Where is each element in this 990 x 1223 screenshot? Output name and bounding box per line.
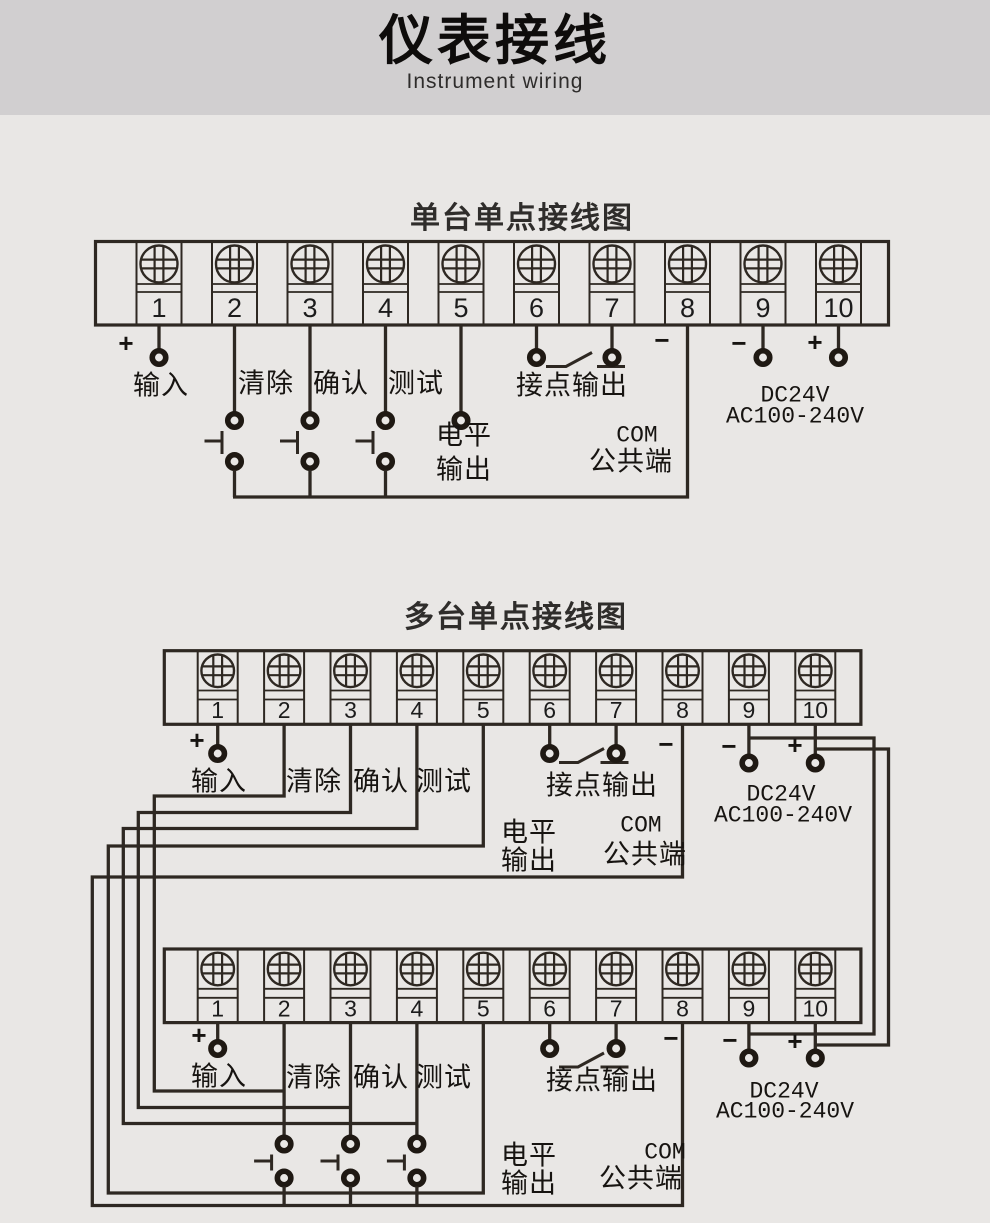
screw-terminal-icon (216, 246, 253, 283)
terminal-number: 5 (453, 293, 468, 323)
ring-terminal (530, 351, 544, 365)
screw-terminal-icon (594, 246, 631, 283)
terminal-clamp-line (590, 284, 635, 292)
terminal-clamp-line (137, 284, 182, 292)
terminal-number: 2 (227, 293, 242, 323)
sign-minus-com-3: − (663, 1025, 678, 1051)
label-input-3: 输入 (191, 1064, 247, 1091)
terminal-number: 3 (302, 293, 317, 323)
label-contact-output-2: 接点输出 (546, 773, 658, 800)
screw-terminal-icon (600, 953, 633, 986)
terminal-number: 9 (743, 697, 756, 723)
terminal-number: 1 (151, 293, 166, 323)
sign-plus-power-2: + (787, 732, 802, 758)
terminal-number: 4 (411, 996, 424, 1022)
label-confirm-2: 确认 (353, 769, 409, 796)
ring-terminal (410, 1171, 424, 1185)
sign-minus-power-1: − (731, 330, 746, 356)
label-com-1: COM (616, 425, 657, 448)
ring-terminal (410, 1137, 424, 1151)
ring-terminal (211, 747, 225, 761)
label-clear-3: 清除 (286, 1065, 342, 1092)
ring-terminal (277, 1171, 291, 1185)
terminal-number: 7 (604, 293, 619, 323)
screw-terminal-icon (201, 655, 234, 688)
screw-terminal-icon (268, 655, 301, 688)
terminal-number: 4 (378, 293, 393, 323)
ring-terminal (543, 1042, 557, 1056)
terminal-clamp-line (439, 284, 484, 292)
label-clear-1: 清除 (238, 371, 294, 398)
sign-minus-com-1: − (654, 327, 669, 353)
terminal-number: 6 (543, 697, 556, 723)
screw-terminal-icon (666, 953, 699, 986)
terminal-clamp-line (741, 284, 786, 292)
label-contact-output-3: 接点输出 (546, 1068, 658, 1095)
terminal-number: 4 (411, 697, 424, 723)
terminal-number: 9 (755, 293, 770, 323)
terminal-number: 6 (529, 293, 544, 323)
screw-terminal-icon (820, 246, 857, 283)
label-ac100-240v-3: AC100-240V (716, 1101, 854, 1124)
ring-terminal (211, 1042, 225, 1056)
ring-terminal (303, 414, 317, 428)
sign-plus-power-1: + (807, 329, 822, 355)
ring-terminal (228, 414, 242, 428)
ring-terminal (379, 414, 393, 428)
ring-terminal (832, 351, 846, 365)
wiring-diagram-canvas: 123456789101234567891012345678910 (0, 0, 990, 1223)
ring-terminal (742, 756, 756, 770)
ring-terminal (605, 351, 619, 365)
ring-terminal (344, 1171, 358, 1185)
label-common-3: 公共端 (599, 1166, 683, 1193)
label-level-1a: 电平 (436, 423, 492, 450)
terminal-number: 5 (477, 697, 490, 723)
terminal-block-2 (164, 651, 861, 725)
ring-terminal (809, 1051, 823, 1065)
label-input-2: 输入 (191, 769, 247, 796)
terminal-number: 2 (278, 996, 291, 1022)
screw-terminal-icon (666, 655, 699, 688)
screw-terminal-icon (141, 246, 178, 283)
screw-terminal-icon (201, 953, 234, 986)
terminal-number: 6 (543, 996, 556, 1022)
screw-terminal-icon (334, 655, 367, 688)
terminal-number: 8 (676, 996, 689, 1022)
label-level-3b: 输出 (501, 1171, 557, 1198)
screw-terminal-icon (799, 953, 832, 986)
label-com-3: COM (644, 1142, 685, 1165)
terminal-number: 3 (344, 996, 357, 1022)
terminal-number: 9 (743, 996, 756, 1022)
ring-terminal (277, 1137, 291, 1151)
terminal-number: 7 (610, 697, 623, 723)
ring-terminal (303, 455, 317, 469)
terminal-number: 10 (823, 293, 853, 323)
terminal-clamp-line (514, 284, 559, 292)
label-level-1b: 输出 (436, 457, 492, 484)
terminal-number: 8 (676, 697, 689, 723)
sign-plus-input-3: + (191, 1022, 206, 1048)
terminal-clamp-line (816, 284, 861, 292)
ring-terminal (344, 1137, 358, 1151)
ring-terminal (742, 1051, 756, 1065)
terminal-clamp-line (212, 284, 257, 292)
ring-terminal (609, 1042, 623, 1056)
wiring-page: 仪表接线 Instrument wiring 单台单点接线图 多台单点接线图 1… (0, 0, 990, 1223)
ring-terminal (609, 747, 623, 761)
screw-terminal-icon (533, 953, 566, 986)
sign-plus-power-3: + (787, 1028, 802, 1054)
terminal-clamp-line (363, 284, 408, 292)
screw-terminal-icon (799, 655, 832, 688)
screw-terminal-icon (467, 655, 500, 688)
screw-terminal-icon (533, 655, 566, 688)
sign-plus-input-2: + (189, 727, 204, 753)
ring-terminal (228, 455, 242, 469)
screw-terminal-icon (733, 655, 766, 688)
screw-terminal-icon (401, 953, 434, 986)
ring-terminal (152, 351, 166, 365)
ring-terminal (379, 455, 393, 469)
screw-terminal-icon (443, 246, 480, 283)
screw-terminal-icon (518, 246, 555, 283)
label-level-2b: 输出 (501, 848, 557, 875)
label-input-1: 输入 (133, 373, 189, 400)
label-ac100-240v-1: AC100-240V (726, 406, 864, 429)
label-test-1: 测试 (388, 371, 444, 398)
terminal-clamp-line (665, 284, 710, 292)
screw-terminal-icon (401, 655, 434, 688)
label-confirm-1: 确认 (313, 371, 369, 398)
label-confirm-3: 确认 (353, 1065, 409, 1092)
ring-terminal (809, 756, 823, 770)
screw-terminal-icon (733, 953, 766, 986)
sign-minus-power-2: − (721, 733, 736, 759)
label-test-2: 测试 (416, 769, 472, 796)
terminal-number: 10 (803, 996, 829, 1022)
screw-terminal-icon (292, 246, 329, 283)
ring-terminal (756, 351, 770, 365)
screw-terminal-icon (745, 246, 782, 283)
terminal-clamp-line (288, 284, 333, 292)
screw-terminal-icon (334, 953, 367, 986)
terminal-number: 5 (477, 996, 490, 1022)
screw-terminal-icon (367, 246, 404, 283)
label-com-2: COM (620, 815, 661, 838)
terminal-number: 8 (680, 293, 695, 323)
ring-terminal (543, 747, 557, 761)
terminal-number: 2 (278, 697, 291, 723)
label-clear-2: 清除 (286, 769, 342, 796)
sign-minus-power-3: − (722, 1027, 737, 1053)
screw-terminal-icon (268, 953, 301, 986)
label-level-3a: 电平 (501, 1143, 557, 1170)
sign-minus-com-2: − (658, 731, 673, 757)
label-common-2: 公共端 (603, 842, 687, 869)
screw-terminal-icon (467, 953, 500, 986)
screw-terminal-icon (669, 246, 706, 283)
label-level-2a: 电平 (501, 820, 557, 847)
terminal-number: 10 (803, 697, 829, 723)
terminal-block-3 (164, 949, 861, 1023)
terminal-number: 7 (610, 996, 623, 1022)
label-ac100-240v-2: AC100-240V (714, 805, 852, 828)
terminal-number: 3 (344, 697, 357, 723)
label-common-1: 公共端 (589, 449, 673, 476)
sign-plus-input-1: + (118, 330, 133, 356)
label-contact-output-1: 接点输出 (516, 373, 628, 400)
terminal-number: 1 (211, 996, 224, 1022)
screw-terminal-icon (600, 655, 633, 688)
terminal-number: 1 (211, 697, 224, 723)
label-test-3: 测试 (416, 1065, 472, 1092)
